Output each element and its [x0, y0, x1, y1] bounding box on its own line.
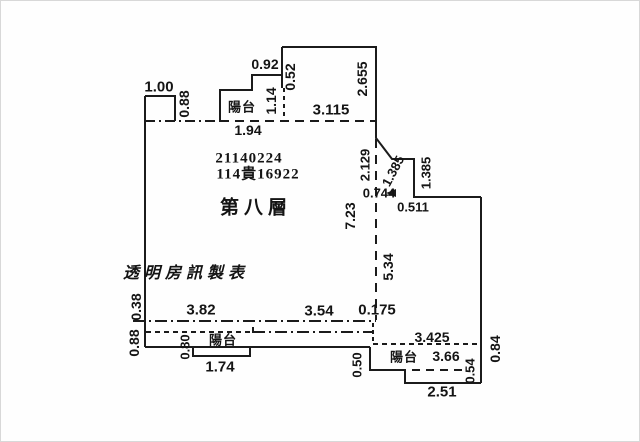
- dim-1.14-top: 1.14: [264, 87, 278, 114]
- dim-3.66-bottom-right: 3.66: [432, 349, 459, 363]
- dim-3.425-bottom-right: 3.425: [414, 330, 449, 344]
- dim-3.54-bottom: 3.54: [304, 304, 333, 319]
- floor-label: 第八層: [220, 199, 292, 218]
- dim-1.94-top: 1.94: [234, 123, 261, 137]
- dim-0.52-top: 0.52: [283, 63, 297, 90]
- dim-0.88-left-bottom: 0.88: [127, 329, 141, 356]
- dim-1.74-bottom-left: 1.74: [205, 360, 234, 375]
- dim-0.92-top: 0.92: [251, 57, 278, 71]
- balcony-label-bottom-left: 陽台: [209, 334, 237, 347]
- dim-2.51-bottom-right: 2.51: [427, 385, 456, 400]
- dim-0.511-right: 0.511: [397, 201, 429, 214]
- balcony-label-bottom-right: 陽台: [390, 351, 418, 364]
- dim-0.84-right: 0.84: [488, 335, 502, 362]
- dim-3.115-top: 3.115: [313, 103, 350, 118]
- watermark: 透明房訊製表: [123, 266, 249, 282]
- dim-2.129-right: 2.129: [359, 149, 372, 182]
- serial-number: 21140224: [215, 152, 282, 167]
- balcony-label-top: 陽台: [228, 101, 256, 114]
- wall-top-left-step: [145, 96, 175, 121]
- case-number: 114貴16922: [216, 168, 299, 183]
- dim-7.23-middle: 7.23: [343, 202, 357, 229]
- dim-0.38-left: 0.38: [129, 293, 143, 320]
- dim-5.34-middle: 5.34: [381, 253, 395, 280]
- dim-0.744-right: 0.744: [363, 187, 396, 200]
- dim-0.54-bottom-right: 0.54: [464, 358, 477, 383]
- dim-0.80-bottom-left: 0.80: [179, 334, 192, 359]
- dim-3.82-bottom: 3.82: [186, 303, 215, 318]
- dim-1.00-top-left: 1.00: [144, 80, 173, 95]
- floor-plan-drawing: [0, 0, 640, 442]
- dim-2.655-right: 2.655: [355, 61, 369, 96]
- balcony-box-bottom-left: [193, 347, 250, 356]
- dim-0.50-bottom: 0.50: [351, 352, 364, 377]
- dim-0.88-top-left: 0.88: [177, 90, 191, 117]
- dim-1.385-vertical: 1.385: [420, 157, 433, 190]
- floor-plan-canvas: 1.000.880.920.52陽台1.141.943.1152.6552114…: [0, 0, 640, 442]
- dashdot-line-lower-2b: [253, 327, 373, 333]
- dim-0.175-bottom: 0.175: [358, 303, 396, 318]
